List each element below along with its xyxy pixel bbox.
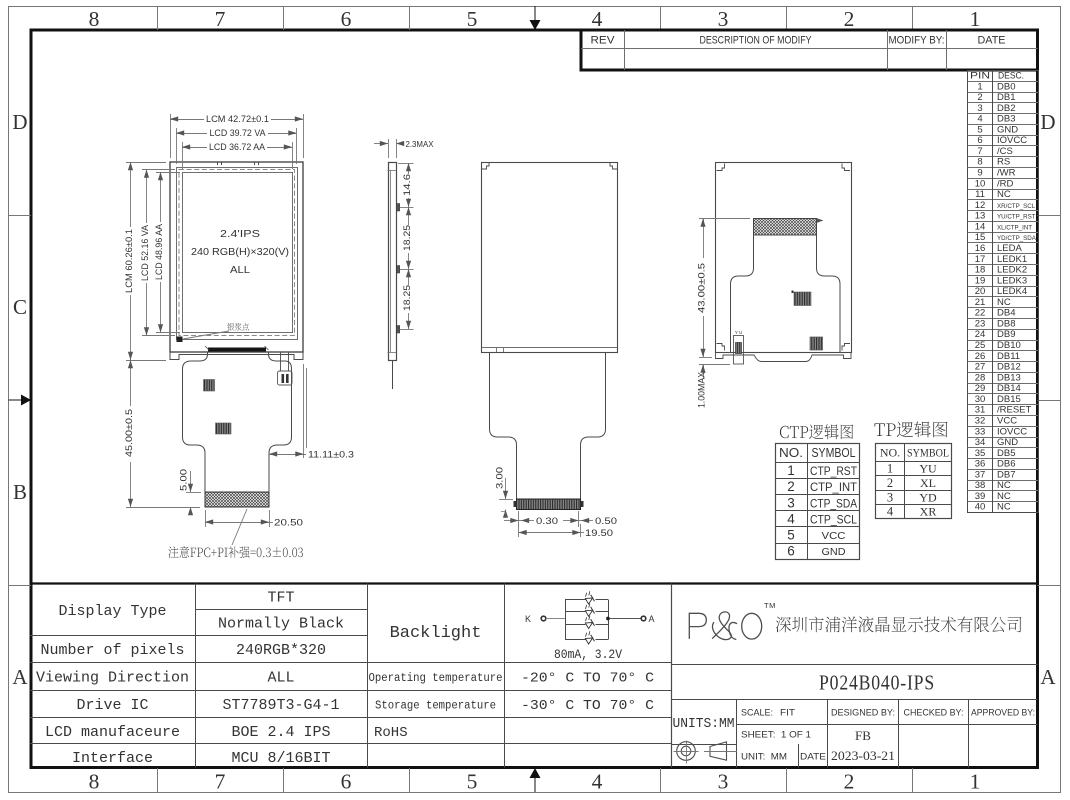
- svg-text:MCU 8/16BIT: MCU 8/16BIT: [231, 750, 330, 767]
- svg-text:K: K: [525, 614, 531, 624]
- svg-text:20: 20: [975, 286, 986, 297]
- svg-text:GND: GND: [997, 124, 1018, 135]
- svg-text:45.00±0.5: 45.00±0.5: [124, 409, 134, 457]
- svg-text:2.3MAX: 2.3MAX: [406, 139, 434, 149]
- svg-text:1: 1: [887, 461, 893, 475]
- svg-text:DB5: DB5: [997, 448, 1015, 459]
- svg-text:8: 8: [89, 770, 100, 794]
- svg-text:LEDK1: LEDK1: [997, 254, 1027, 265]
- svg-text:NC: NC: [997, 297, 1011, 308]
- svg-text:31: 31: [975, 405, 986, 416]
- svg-text:18: 18: [975, 265, 986, 276]
- svg-text:14.6: 14.6: [402, 174, 412, 196]
- svg-text:0.30: 0.30: [536, 516, 558, 526]
- svg-text:11: 11: [975, 189, 985, 200]
- svg-text:/RD: /RD: [997, 178, 1014, 189]
- svg-text:DESIGNED BY:: DESIGNED BY:: [831, 708, 895, 719]
- svg-text:4: 4: [887, 505, 894, 519]
- svg-text:240 RGB(H)×320(V): 240 RGB(H)×320(V): [191, 247, 289, 258]
- svg-text:27: 27: [975, 362, 986, 373]
- svg-text:VCC: VCC: [822, 530, 846, 542]
- svg-text:7: 7: [977, 146, 982, 157]
- svg-text:D: D: [12, 110, 27, 134]
- svg-text:11.11±0.3: 11.11±0.3: [308, 450, 354, 460]
- svg-text:YD/CTP_SDA: YD/CTP_SDA: [997, 235, 1037, 242]
- svg-text:DATE: DATE: [800, 752, 826, 763]
- svg-text:TFT: TFT: [267, 590, 294, 607]
- svg-text:1.00MAX: 1.00MAX: [697, 372, 707, 408]
- svg-text:29: 29: [975, 383, 986, 394]
- svg-text:YU: YU: [919, 461, 937, 475]
- svg-text:LEDK2: LEDK2: [997, 265, 1027, 276]
- svg-text:4: 4: [787, 511, 795, 526]
- svg-text:A: A: [12, 665, 28, 689]
- svg-text:XR: XR: [920, 505, 937, 519]
- svg-text:0.50: 0.50: [595, 516, 617, 526]
- svg-text:13: 13: [975, 211, 986, 222]
- svg-text:DB13: DB13: [997, 372, 1021, 383]
- svg-text:LCM 42.72±0.1: LCM 42.72±0.1: [206, 114, 269, 124]
- svg-text:ALL: ALL: [267, 670, 294, 687]
- svg-text:DB1: DB1: [997, 92, 1015, 103]
- svg-text:A: A: [1040, 665, 1056, 689]
- svg-text:XL/CTP_INT: XL/CTP_INT: [997, 224, 1032, 231]
- svg-text:15: 15: [975, 232, 986, 243]
- svg-text:DESC.: DESC.: [998, 71, 1024, 81]
- svg-text:LCM 60.26±0.1: LCM 60.26±0.1: [124, 229, 134, 293]
- svg-text:FB: FB: [855, 728, 871, 743]
- svg-text:CTP_SDA: CTP_SDA: [810, 496, 857, 510]
- svg-text:VCC: VCC: [997, 415, 1017, 426]
- svg-text:D: D: [1040, 110, 1055, 134]
- svg-text:LCD 52.16 VA: LCD 52.16 VA: [140, 224, 150, 281]
- svg-text:NO.: NO.: [779, 446, 803, 460]
- svg-text:2023-03-21: 2023-03-21: [831, 749, 895, 763]
- svg-text:18.25: 18.25: [402, 285, 412, 311]
- svg-text:GND: GND: [997, 437, 1018, 448]
- svg-text:SYMBOL: SYMBOL: [907, 446, 949, 460]
- svg-text:30: 30: [975, 394, 986, 405]
- svg-text:1: 1: [970, 770, 981, 794]
- svg-text:ST7789T3-G4-1: ST7789T3-G4-1: [222, 697, 339, 714]
- svg-text:IOVCC: IOVCC: [997, 135, 1027, 146]
- svg-text:24: 24: [975, 329, 986, 340]
- svg-text:Number of pixels: Number of pixels: [40, 642, 184, 659]
- svg-text:2: 2: [844, 770, 855, 794]
- svg-text:21: 21: [975, 297, 986, 308]
- svg-text:CHECKED BY:: CHECKED BY:: [904, 708, 964, 719]
- svg-text:36: 36: [975, 459, 986, 470]
- svg-text:2.4'IPS: 2.4'IPS: [220, 229, 260, 240]
- svg-text:DB7: DB7: [997, 469, 1015, 480]
- svg-text:REV: REV: [591, 35, 616, 47]
- svg-text:DATE: DATE: [978, 35, 1006, 47]
- svg-text:33: 33: [975, 426, 986, 437]
- svg-text:4: 4: [977, 114, 982, 125]
- svg-text:6: 6: [977, 135, 982, 146]
- svg-text:39: 39: [975, 491, 986, 502]
- svg-text:XR/CTP_SCL: XR/CTP_SCL: [997, 203, 1036, 210]
- svg-text:LCD 48.96 AA: LCD 48.96 AA: [154, 223, 164, 280]
- svg-text:DB0: DB0: [997, 81, 1015, 92]
- svg-text:3: 3: [787, 495, 795, 510]
- svg-text:1: 1: [970, 7, 981, 31]
- svg-text:DB3: DB3: [997, 114, 1015, 125]
- svg-text:RS: RS: [997, 157, 1010, 168]
- svg-text:A: A: [648, 614, 654, 624]
- svg-text:Drive IC: Drive IC: [76, 697, 148, 714]
- svg-text:DB11: DB11: [997, 351, 1020, 362]
- svg-text:B: B: [13, 480, 27, 504]
- svg-text:6: 6: [341, 7, 352, 31]
- svg-text:7: 7: [215, 770, 226, 794]
- svg-text:LCD manufaceure: LCD manufaceure: [45, 724, 180, 741]
- svg-text:Storage temperature: Storage temperature: [375, 700, 496, 713]
- svg-text:35: 35: [975, 448, 986, 459]
- svg-text:NO.: NO.: [880, 446, 900, 460]
- svg-text:DB2: DB2: [997, 103, 1015, 114]
- svg-text:80mA, 3.2V: 80mA, 3.2V: [554, 647, 622, 662]
- svg-text:DB4: DB4: [997, 308, 1015, 319]
- svg-text:Display Type: Display Type: [58, 603, 166, 620]
- svg-text:Viewing Direction: Viewing Direction: [36, 670, 189, 687]
- svg-text:20.50: 20.50: [274, 518, 303, 528]
- svg-text:6: 6: [787, 544, 795, 559]
- svg-text:25: 25: [975, 340, 986, 351]
- svg-text:LEDA: LEDA: [997, 243, 1022, 254]
- svg-text:UNITS:MM: UNITS:MM: [673, 717, 735, 732]
- svg-text:2: 2: [887, 476, 893, 490]
- svg-text:DB9: DB9: [997, 329, 1015, 340]
- svg-text:NC: NC: [997, 189, 1011, 200]
- svg-text:LCD 39.72 VA: LCD 39.72 VA: [210, 128, 267, 138]
- svg-text:SHEET: 1 OF 1: SHEET: 1 OF 1: [741, 730, 811, 741]
- svg-text:34: 34: [975, 437, 986, 448]
- svg-text:3.00: 3.00: [495, 467, 505, 489]
- svg-text:5: 5: [467, 770, 478, 794]
- svg-text:6: 6: [341, 770, 352, 794]
- svg-text:DB15: DB15: [997, 394, 1021, 405]
- svg-text:22: 22: [975, 308, 986, 319]
- svg-text:32: 32: [975, 415, 986, 426]
- svg-text:MODIFY BY:: MODIFY BY:: [889, 35, 945, 47]
- svg-text:DB8: DB8: [997, 318, 1015, 329]
- svg-text:-20° C TO 70° C: -20° C TO 70° C: [521, 672, 654, 687]
- svg-text:/RESET: /RESET: [997, 405, 1032, 416]
- svg-text:38: 38: [975, 480, 986, 491]
- svg-text:4: 4: [592, 770, 603, 794]
- svg-text:37: 37: [975, 469, 986, 480]
- svg-text:SCALE:: SCALE:: [741, 708, 773, 719]
- svg-text:LCD 36.72 AA: LCD 36.72 AA: [209, 142, 266, 152]
- svg-text:Y U: Y U: [735, 330, 742, 335]
- svg-text:5: 5: [787, 527, 795, 542]
- svg-text:DESCRIPTION OF MODIFY: DESCRIPTION OF MODIFY: [700, 35, 813, 47]
- svg-text:NC: NC: [997, 480, 1011, 491]
- svg-text:RoHS: RoHS: [374, 725, 408, 741]
- svg-text:LEDK4: LEDK4: [997, 286, 1027, 297]
- svg-text:43.00±0.5: 43.00±0.5: [697, 263, 707, 313]
- svg-text:2: 2: [977, 92, 982, 103]
- svg-text:23: 23: [975, 318, 986, 329]
- svg-text:19.50: 19.50: [585, 528, 613, 538]
- svg-text:PIN: PIN: [970, 71, 990, 81]
- svg-text:DB12: DB12: [997, 362, 1021, 373]
- svg-text:SYMBOL: SYMBOL: [812, 446, 856, 460]
- svg-text:IOVCC: IOVCC: [997, 426, 1027, 437]
- svg-text:3: 3: [887, 490, 893, 504]
- svg-text:240RGB*320: 240RGB*320: [236, 642, 326, 659]
- svg-text:FIT: FIT: [780, 708, 795, 719]
- svg-text:19: 19: [975, 275, 986, 286]
- svg-text:APPROVED BY:: APPROVED BY:: [971, 708, 1035, 719]
- svg-text:YD: YD: [919, 490, 937, 504]
- svg-text:DB6: DB6: [997, 459, 1015, 470]
- svg-text:16: 16: [975, 243, 986, 254]
- svg-text:XL: XL: [920, 476, 936, 490]
- svg-text:5: 5: [467, 7, 478, 31]
- svg-text:18.25: 18.25: [402, 225, 412, 251]
- svg-text:NC: NC: [997, 491, 1011, 502]
- svg-text:5.00: 5.00: [179, 469, 189, 491]
- svg-text:CTP_SCL: CTP_SCL: [810, 512, 857, 526]
- svg-text:DB14: DB14: [997, 383, 1021, 394]
- svg-text:/CS: /CS: [997, 146, 1013, 157]
- svg-text:CTP_RST: CTP_RST: [810, 464, 858, 478]
- svg-text:/WR: /WR: [997, 168, 1016, 179]
- svg-text:8: 8: [89, 7, 100, 31]
- svg-text:ALL: ALL: [230, 265, 250, 276]
- svg-text:C: C: [13, 295, 27, 319]
- svg-text:3: 3: [718, 7, 729, 31]
- svg-text:Operating temperature: Operating temperature: [369, 672, 503, 685]
- svg-text:3: 3: [718, 770, 729, 794]
- svg-text:UNIT: MM: UNIT: MM: [741, 752, 787, 763]
- svg-text:NC: NC: [997, 502, 1011, 513]
- svg-text:7: 7: [215, 7, 226, 31]
- svg-text:1: 1: [977, 81, 982, 92]
- svg-text:26: 26: [975, 351, 986, 362]
- svg-text:-30° C TO 70° C: -30° C TO 70° C: [521, 699, 654, 714]
- svg-text:8: 8: [977, 157, 982, 168]
- svg-text:40: 40: [975, 502, 986, 513]
- svg-text:Normally Black: Normally Black: [218, 616, 344, 633]
- svg-text:CTP_INT: CTP_INT: [810, 480, 858, 494]
- svg-text:28: 28: [975, 372, 986, 383]
- svg-text:YU/CTP_RST: YU/CTP_RST: [997, 214, 1036, 221]
- svg-text:17: 17: [975, 254, 986, 265]
- svg-text:9: 9: [977, 168, 982, 179]
- svg-text:LEDK3: LEDK3: [997, 275, 1027, 286]
- svg-text:1: 1: [787, 463, 795, 478]
- svg-text:GND: GND: [822, 546, 846, 558]
- svg-text:P024B040-IPS: P024B040-IPS: [819, 671, 935, 695]
- svg-text:BOE 2.4 IPS: BOE 2.4 IPS: [231, 724, 330, 741]
- svg-text:14: 14: [975, 221, 986, 232]
- svg-text:4: 4: [592, 7, 603, 31]
- svg-text:5: 5: [977, 124, 982, 135]
- svg-text:2: 2: [787, 479, 795, 494]
- svg-text:DB10: DB10: [997, 340, 1021, 351]
- svg-text:TM: TM: [764, 601, 776, 610]
- svg-text:10: 10: [975, 178, 986, 189]
- svg-text:2: 2: [844, 7, 855, 31]
- svg-text:Backlight: Backlight: [390, 624, 482, 643]
- svg-text:Interface: Interface: [72, 750, 153, 767]
- svg-text:12: 12: [975, 200, 986, 211]
- svg-text:3: 3: [977, 103, 982, 114]
